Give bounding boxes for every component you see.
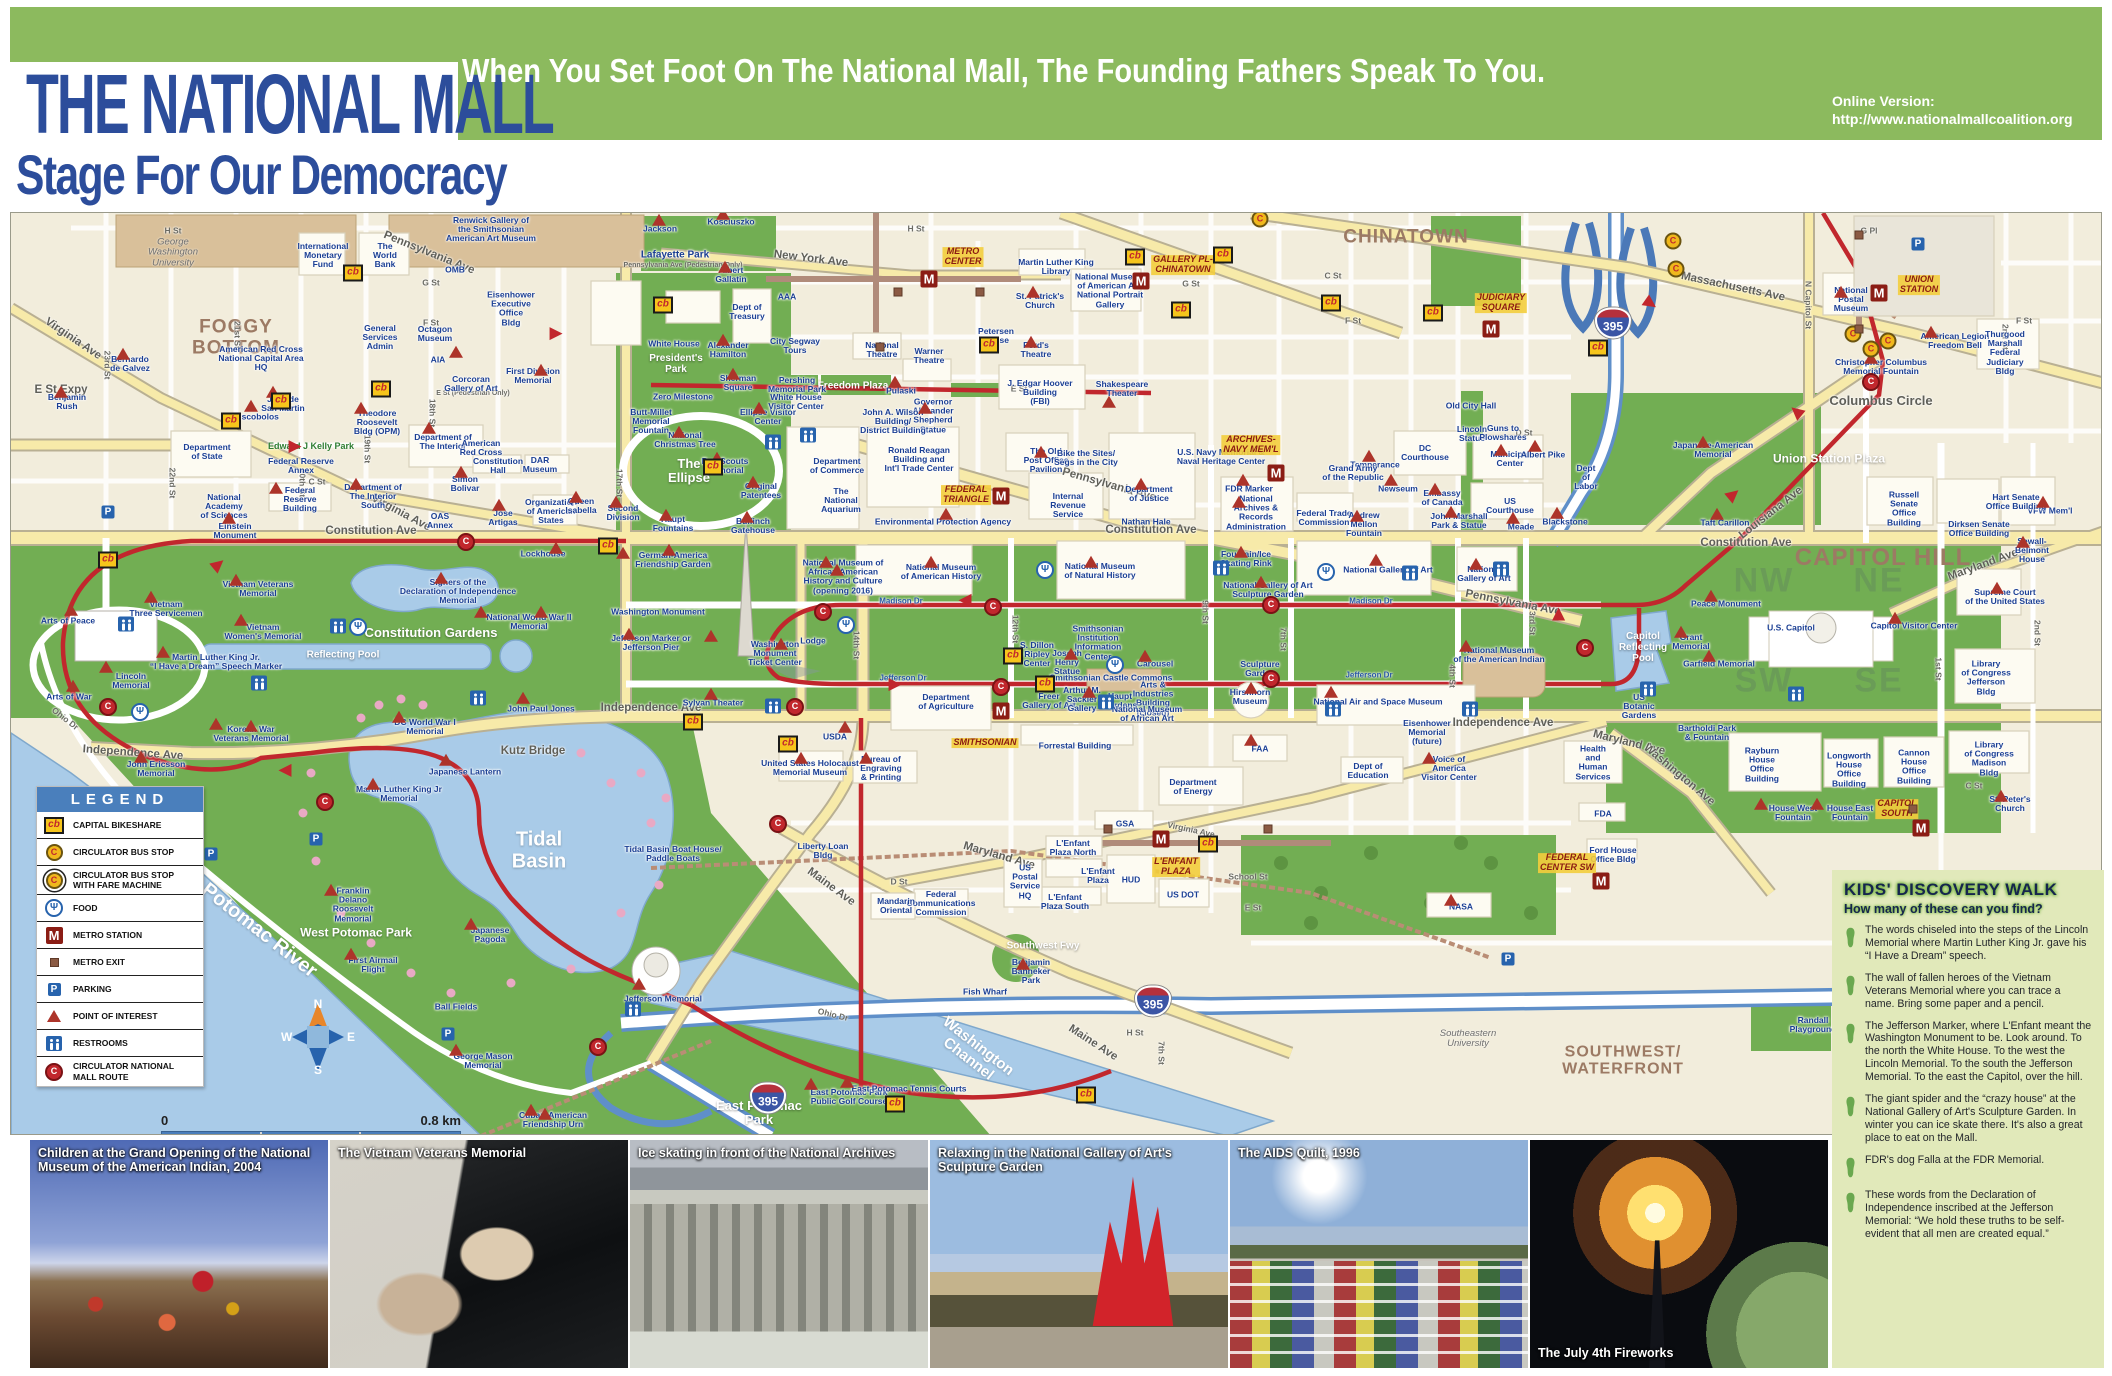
point-of-interest-icon xyxy=(439,754,453,766)
scale-km: 0.8 km xyxy=(421,1113,461,1128)
restrooms-icon xyxy=(1402,566,1418,581)
page-subtitle: Stage For Our Democracy xyxy=(16,142,506,207)
map-label: Corcoran Gallery of Art xyxy=(444,375,498,393)
legend-item: METRO EXIT xyxy=(37,948,203,975)
restrooms-icon xyxy=(1788,687,1804,702)
map-label: E St xyxy=(1245,903,1262,912)
kids-item-text: The giant spider and the “crazy house” a… xyxy=(1865,1093,2092,1145)
online-version-label: Online Version: xyxy=(1832,92,2073,110)
map-label: G St xyxy=(422,278,439,287)
metro-station-label: UNION STATION xyxy=(1898,275,1940,295)
map-label: Bartholdi Park & Fountain xyxy=(1678,724,1736,742)
point-of-interest-icon xyxy=(1469,558,1483,570)
kids-item: The Jefferson Marker, where L'Enfant mea… xyxy=(1844,1020,2092,1085)
map-label: NE xyxy=(1853,563,1904,600)
point-of-interest-icon xyxy=(1674,626,1688,638)
map-label: Butt-Millet Memorial Fountain xyxy=(630,408,672,436)
interstate-395-shield: 395 xyxy=(1595,308,1631,339)
point-of-interest-icon xyxy=(830,564,844,576)
metro-station-label: METRO CENTER xyxy=(942,247,983,267)
legend-item: M METRO STATION xyxy=(37,921,203,948)
kids-item-text: The Jefferson Marker, where L'Enfant mea… xyxy=(1865,1020,2092,1085)
map-label: 19th St xyxy=(362,435,371,463)
map-label: Grand Army of the Republic xyxy=(1322,464,1383,482)
circulator-bus-stop-icon: C xyxy=(46,844,63,861)
capital-bikeshare-icon: cb xyxy=(1423,305,1443,322)
point-of-interest-icon xyxy=(47,1010,61,1022)
map-label: White House Visitor Center xyxy=(768,393,824,411)
restrooms-icon xyxy=(46,1036,62,1051)
map-label: Longworth House Office Building xyxy=(1827,752,1871,789)
footprint-icon xyxy=(1844,926,1857,950)
metro-exit-icon xyxy=(894,288,903,297)
restrooms-icon xyxy=(330,619,346,634)
map-label: Constitution Ave xyxy=(325,525,416,537)
map-label: 22nd St xyxy=(167,468,176,499)
map-label: Union Station Plaza xyxy=(1773,453,1885,466)
point-of-interest-icon xyxy=(1324,686,1338,698)
point-of-interest-icon xyxy=(1459,640,1473,652)
map-label: Massachusetts Ave xyxy=(1680,270,1786,304)
map-label: General Services Admin xyxy=(363,324,398,352)
capital-bikeshare-icon: cb xyxy=(371,381,391,398)
map-label: George Washington University xyxy=(148,238,198,269)
map-label: Constitution Gardens xyxy=(365,626,498,640)
footprint-icon xyxy=(1844,1156,1857,1180)
point-of-interest-icon xyxy=(1810,798,1824,810)
circulator-route-stop-icon: C xyxy=(786,698,804,716)
metro-exit-icon xyxy=(50,958,59,967)
map-label: Zero Milestone xyxy=(653,392,713,401)
map-label: 1st St xyxy=(1933,657,1942,680)
map-label: US DOT xyxy=(1167,890,1199,899)
map-label: Edward J Kelly Park xyxy=(268,442,354,452)
compass-w-label: W xyxy=(281,1030,292,1044)
point-of-interest-icon xyxy=(1024,336,1038,348)
kids-item-text: The wall of fallen heroes of the Vietnam… xyxy=(1865,972,2092,1011)
point-of-interest-icon xyxy=(1138,650,1152,662)
metro-station-icon: M xyxy=(1153,831,1170,848)
map-label: Federal Communications Commission xyxy=(907,890,976,918)
kids-item: The words chiseled into the steps of the… xyxy=(1844,924,2092,963)
map-label: East Potomac Park Public Golf Course xyxy=(810,1088,887,1106)
point-of-interest-icon xyxy=(1494,444,1508,456)
map-label: 12th St xyxy=(1010,615,1019,643)
map-label: Einstein Monument xyxy=(214,522,257,540)
map-label: DC Courthouse xyxy=(1401,444,1449,462)
map-label: Federal Trade Commission xyxy=(1296,509,1351,527)
circulator-route-stop-icon: C xyxy=(814,603,832,621)
capital-bikeshare-icon: cb xyxy=(653,297,673,314)
point-of-interest-icon xyxy=(366,778,380,790)
kids-item: These words from the Declaration of Inde… xyxy=(1844,1189,2092,1241)
map-label: Southwest Fwy xyxy=(1007,942,1080,953)
restrooms-icon xyxy=(1098,695,1114,710)
map-label: Japanese-American Memorial xyxy=(1673,441,1753,459)
point-of-interest-icon xyxy=(1384,474,1398,486)
map-label: Thurgood Marshall Federal Judiciary Bldg xyxy=(1985,330,2025,376)
point-of-interest-icon xyxy=(229,574,243,586)
map-label: C St xyxy=(1966,781,1983,790)
metro-station-icon: M xyxy=(993,488,1010,505)
map-label: Southeastern University xyxy=(1440,1029,1497,1050)
capital-bikeshare-icon: cb xyxy=(979,337,999,354)
map-label: Potomac River xyxy=(197,879,321,982)
map-label: Octagon Museum xyxy=(418,325,452,343)
capital-bikeshare-icon: cb xyxy=(1213,247,1233,264)
circulator-route-stop-icon: C xyxy=(1262,596,1280,614)
circulator-route-stop-icon: C xyxy=(316,793,334,811)
map-label: The National Aquarium xyxy=(821,487,861,515)
point-of-interest-icon xyxy=(774,638,788,650)
scale-km-zero: 0 xyxy=(161,1113,168,1128)
photo-caption: Relaxing in the National Gallery of Art'… xyxy=(938,1146,1220,1175)
metro-station-icon: M xyxy=(46,927,63,944)
legend-label: METRO STATION xyxy=(73,930,142,940)
map-label: J. Edgar Hoover Building (FBI) xyxy=(1007,379,1072,407)
point-of-interest-icon xyxy=(516,692,530,704)
point-of-interest-icon xyxy=(716,334,730,346)
point-of-interest-icon xyxy=(1369,554,1383,566)
online-version: Online Version: http://www.nationalmallc… xyxy=(1832,92,2073,128)
point-of-interest-icon xyxy=(1428,483,1442,495)
point-of-interest-icon xyxy=(1710,508,1724,520)
legend-label: CIRCULATOR NATIONAL MALL ROUTE xyxy=(73,1061,197,1081)
map-label: National Museum of American History xyxy=(901,563,981,581)
map-label: L'Enfant Plaza South xyxy=(1041,893,1089,911)
map-label: Department of State xyxy=(183,443,230,461)
map-label: West Potomac Park xyxy=(300,927,412,940)
point-of-interest-icon xyxy=(1990,582,2004,594)
legend-title: LEGEND xyxy=(37,787,203,812)
legend-label: FOOD xyxy=(73,903,98,913)
restrooms-icon xyxy=(765,435,781,450)
interstate-395-shield: 395 xyxy=(750,1083,786,1114)
point-of-interest-icon xyxy=(659,509,673,521)
metro-station-icon: M xyxy=(993,703,1010,720)
map-label: Madison Dr xyxy=(879,598,923,607)
map-label: 2nd St xyxy=(2032,620,2041,646)
map-label: Constitution Hall xyxy=(473,457,523,475)
photo-caption: The AIDS Quilt, 1996 xyxy=(1238,1146,1520,1160)
point-of-interest-icon xyxy=(1082,686,1096,698)
map-label: John A. Wilson Building/ District Buildi… xyxy=(860,408,926,436)
kids-item: FDR's dog Falla at the FDR Memorial. xyxy=(1844,1154,2092,1180)
point-of-interest-icon xyxy=(534,606,548,618)
map-label: New York Ave xyxy=(773,248,849,269)
metro-exit-icon xyxy=(1909,805,1918,814)
legend-label: METRO EXIT xyxy=(73,957,125,967)
map-label: Lafayette Park xyxy=(641,251,709,262)
map-label: Maryland Ave xyxy=(1946,547,2020,584)
map-label: Mandarin Oriental xyxy=(877,897,915,915)
map-label: Library of Congress Jefferson Bldg xyxy=(1961,660,2011,697)
map-label: Cannon House Office Building xyxy=(1897,749,1931,786)
point-of-interest-icon xyxy=(652,214,666,226)
metro-exit-icon xyxy=(1104,825,1113,834)
map-label: SE xyxy=(1854,663,1903,700)
map-label: SW xyxy=(1735,663,1794,700)
point-of-interest-icon xyxy=(534,364,548,376)
point-of-interest-icon xyxy=(1254,576,1268,588)
map-label: F St xyxy=(2016,316,2032,325)
point-of-interest-icon xyxy=(222,512,236,524)
route-direction-arrow: ▶ xyxy=(288,436,301,456)
restrooms-icon xyxy=(1493,562,1509,577)
restrooms-icon xyxy=(1640,682,1656,697)
point-of-interest-icon xyxy=(838,721,852,733)
point-of-interest-icon xyxy=(1236,474,1250,486)
circulator-bus-stop-icon: C xyxy=(1252,212,1269,228)
map-label: 14th St xyxy=(851,631,860,659)
map-label: East Potomac Tennis Courts xyxy=(851,1084,966,1093)
parking-icon: P xyxy=(442,1028,455,1041)
map-label: 17th St xyxy=(614,469,623,497)
point-of-interest-icon xyxy=(474,606,488,618)
map-label: C St xyxy=(1325,271,1342,280)
point-of-interest-icon xyxy=(2036,496,2050,508)
footprint-icon xyxy=(1844,1191,1857,1215)
map-label: SOUTHWEST/ WATERFRONT xyxy=(1562,1044,1684,1079)
footprint-icon xyxy=(1844,974,1857,998)
legend-item: RESTROOMS xyxy=(37,1029,203,1056)
map-label: Internal Revenue Service xyxy=(1050,492,1085,520)
map-label: N Capitol St xyxy=(1803,281,1812,329)
map-label: Independence Ave xyxy=(82,743,183,762)
capital-bikeshare-icon: cb xyxy=(1198,836,1218,853)
kids-item-text: These words from the Declaration of Inde… xyxy=(1865,1189,2092,1241)
photo-ice-skating-archives: Ice skating in front of the National Arc… xyxy=(630,1140,928,1368)
legend: LEGEND cb CAPITAL BIKESHARE C CIRCULATOR… xyxy=(36,786,204,1087)
map-label: National Gallery of Art xyxy=(1343,565,1432,574)
circulator-route-stop-icon: C xyxy=(589,1038,607,1056)
point-of-interest-icon xyxy=(1084,556,1098,568)
capital-bikeshare-icon: cb xyxy=(98,552,118,569)
compass-e-label: E xyxy=(347,1030,355,1044)
map-label: Virginia Ave xyxy=(42,316,103,363)
capital-bikeshare-icon: cb xyxy=(1076,1087,1096,1104)
circulator-route-stop-icon: C xyxy=(1862,373,1880,391)
point-of-interest-icon xyxy=(569,491,583,503)
map-label: Kutz Bridge xyxy=(501,745,566,757)
map-label: Department of The Interior xyxy=(414,433,472,451)
point-of-interest-icon xyxy=(1994,790,2008,802)
legend-label: PARKING xyxy=(73,984,112,994)
map-label: 4th St xyxy=(1447,664,1456,688)
map-label: Federal Reserve Annex xyxy=(268,457,334,475)
point-of-interest-icon xyxy=(392,711,406,723)
parking-icon: P xyxy=(102,506,115,519)
kids-item: The wall of fallen heroes of the Vietnam… xyxy=(1844,972,2092,1011)
point-of-interest-icon xyxy=(324,884,338,896)
map-label: FDA xyxy=(1594,809,1611,818)
map-label: National World War II Memorial xyxy=(486,613,571,631)
capital-bikeshare-icon: cb xyxy=(1003,648,1023,665)
map-label: FOGGY BOTTOM xyxy=(192,317,280,358)
map-label: Jefferson Dr xyxy=(879,675,926,684)
point-of-interest-icon xyxy=(859,752,873,764)
point-of-interest-icon xyxy=(1234,546,1248,558)
map-label: Taft Carillon xyxy=(1701,518,1750,527)
map-label: U.S. Capitol xyxy=(1767,623,1815,632)
map-label: Tidal Basin Boat House/ Paddle Boats xyxy=(624,845,721,863)
circulator-route-stop-icon: C xyxy=(992,678,1010,696)
map-label: American Red Cross xyxy=(460,439,503,457)
circulator-bus-stop-icon: C xyxy=(1863,341,1880,358)
tagline: When You Set Foot On The National Mall, … xyxy=(462,52,1545,90)
point-of-interest-icon xyxy=(1422,752,1436,764)
map-label: OAS Annex xyxy=(427,512,453,530)
point-of-interest-icon xyxy=(939,508,953,520)
map-label: Arts of Peace xyxy=(41,616,95,625)
map-label: The World Bank xyxy=(373,242,397,270)
food-icon: Ψ xyxy=(837,616,855,634)
metro-station-label: L'ENFANT PLAZA xyxy=(1152,857,1200,877)
point-of-interest-icon xyxy=(156,646,170,658)
point-of-interest-icon xyxy=(632,978,646,990)
circulator-bus-stop-icon: C xyxy=(1668,261,1685,278)
map-label: AAA xyxy=(778,292,796,301)
map-label: H St xyxy=(908,224,925,233)
point-of-interest-icon xyxy=(740,511,754,523)
point-of-interest-icon xyxy=(464,918,478,930)
map-label: Liberty Loan Bldg xyxy=(797,842,848,860)
circulator-route-icon: C xyxy=(45,1063,63,1081)
capital-bikeshare-icon: cb xyxy=(1588,340,1608,357)
circulator-bus-stop-icon: C xyxy=(1665,233,1682,250)
metro-station-icon: M xyxy=(1913,820,1930,837)
point-of-interest-icon xyxy=(549,542,563,554)
route-direction-arrow: ▶ xyxy=(1785,400,1808,424)
map-label: C St xyxy=(309,477,326,486)
map-label: 20th St xyxy=(297,469,306,497)
map-label: NW xyxy=(1734,563,1795,600)
map-label: Randall Playground xyxy=(1790,1016,1837,1034)
map-label: 9th St xyxy=(1200,600,1209,624)
metro-exit-icon xyxy=(1855,231,1864,240)
circulator-route-stop-icon: C xyxy=(99,698,117,716)
map-label: House East Fountain xyxy=(1827,804,1873,822)
point-of-interest-icon xyxy=(1362,450,1376,462)
map-label: Christopher Columbus Memorial Fountain xyxy=(1835,358,1927,376)
capital-bikeshare-icon: cb xyxy=(778,736,798,753)
point-of-interest-icon xyxy=(622,628,636,640)
map-label: Arts of War xyxy=(46,692,92,701)
point-of-interest-icon xyxy=(144,591,158,603)
map-label: US Botanic Gardens xyxy=(1622,693,1657,721)
map-label: Old City Hall xyxy=(1446,401,1497,410)
map-label: Tidal Basin xyxy=(512,829,566,872)
map-label: Independence Ave xyxy=(1453,717,1554,729)
point-of-interest-icon xyxy=(116,348,130,360)
map-label: First Division Memorial xyxy=(506,367,560,385)
map-label: HUD xyxy=(1122,875,1140,884)
photo-caption: Children at the Grand Opening of the Nat… xyxy=(38,1146,320,1175)
map-label: F St xyxy=(423,318,439,327)
restrooms-icon xyxy=(625,1002,641,1017)
map-label: D St xyxy=(1516,428,1533,437)
circulator-bus-stop-fare-icon: C xyxy=(46,872,63,889)
point-of-interest-icon xyxy=(1244,734,1258,746)
point-of-interest-icon xyxy=(746,476,760,488)
map-label: Department of Justice xyxy=(1125,485,1172,503)
map-label: Ohio Dr xyxy=(817,1007,849,1023)
map-label: Ford House Office Bldg xyxy=(1589,846,1636,864)
legend-label: CAPITAL BIKESHARE xyxy=(73,820,161,830)
map-label: Louisiana Ave xyxy=(1737,484,1805,541)
photo-caption: Ice skating in front of the National Arc… xyxy=(638,1146,920,1160)
point-of-interest-icon xyxy=(924,556,938,568)
map-label: E St xyxy=(1011,384,1028,393)
map-label: Nathan Hale xyxy=(1121,517,1170,526)
point-of-interest-icon xyxy=(66,680,80,692)
route-direction-arrow: ▶ xyxy=(958,591,971,611)
point-of-interest-icon xyxy=(64,604,78,616)
map-label: Ohio Dr xyxy=(50,706,80,732)
map-label: Warner Theatre xyxy=(914,347,945,365)
kids-discovery-walk-panel: KIDS' DISCOVERY WALK How many of these c… xyxy=(1832,870,2104,1368)
restrooms-icon xyxy=(251,676,267,691)
capital-bikeshare-icon: cb xyxy=(221,413,241,430)
map-label: Franklin Delano Roosevelt Memorial xyxy=(333,887,374,924)
capital-bikeshare-icon: cb xyxy=(343,265,363,282)
metro-station-label: JUDICIARY SQUARE xyxy=(1475,293,1527,313)
metro-station-icon: M xyxy=(1593,873,1610,890)
map-label: Maryland Ave xyxy=(1592,728,1667,758)
point-of-interest-icon xyxy=(244,400,258,412)
point-of-interest-icon xyxy=(524,1104,538,1116)
metro-exit-icon xyxy=(1264,825,1273,834)
restrooms-icon xyxy=(118,617,134,632)
capital-bikeshare-icon: cb xyxy=(1321,295,1341,312)
capital-bikeshare-icon: cb xyxy=(1035,676,1055,693)
metro-station-label: FEDERAL TRIANGLE xyxy=(941,485,991,505)
map-label: Jefferson Dr xyxy=(1345,672,1392,681)
calder-sculpture xyxy=(1085,1176,1181,1326)
map-label: Forrestal Building xyxy=(1039,741,1112,750)
point-of-interest-icon xyxy=(234,614,248,626)
photo-july4-fireworks: The July 4th Fireworks xyxy=(1530,1140,1828,1368)
map-label: U.S. Navy Memorial & Naval Heritage Cent… xyxy=(1177,448,1265,466)
point-of-interest-icon xyxy=(1034,446,1048,458)
map-label: Washington Channel xyxy=(929,1014,1016,1092)
map-label: Capitol Reflecting Pool xyxy=(1619,632,1667,664)
map-label: 23rd St xyxy=(102,351,111,380)
map-label: International Monetary Fund xyxy=(297,242,348,270)
route-direction-arrow: ▶ xyxy=(888,674,901,694)
parking-icon: P xyxy=(48,983,61,996)
capital-bikeshare-icon: cb xyxy=(683,714,703,731)
parking-icon: P xyxy=(205,848,218,861)
route-direction-arrow: ▶ xyxy=(1722,482,1745,506)
point-of-interest-icon xyxy=(1102,396,1116,408)
route-direction-arrow: ▶ xyxy=(1548,607,1568,620)
point-of-interest-icon xyxy=(1244,682,1258,694)
photo-american-indian-museum: Children at the Grand Opening of the Nat… xyxy=(30,1140,328,1368)
map-label: H St xyxy=(165,226,182,235)
map-label: Columbus Circle xyxy=(1829,394,1932,408)
map-label: Lincoln Memorial xyxy=(112,672,149,690)
route-direction-arrow: ▶ xyxy=(1640,291,1662,315)
point-of-interest-icon xyxy=(1134,478,1148,490)
point-of-interest-icon xyxy=(422,422,436,434)
parking-icon: P xyxy=(310,833,323,846)
food-icon: Ψ xyxy=(131,703,149,721)
map: FOGGY BOTTOMCHINATOWNCAPITOL HILLSOUTHWE… xyxy=(10,212,2102,1135)
circulator-route-stop-icon: C xyxy=(1262,670,1280,688)
compass-rose: N S E W xyxy=(279,995,357,1079)
map-label: Ellipse Visitor Center xyxy=(740,408,796,426)
